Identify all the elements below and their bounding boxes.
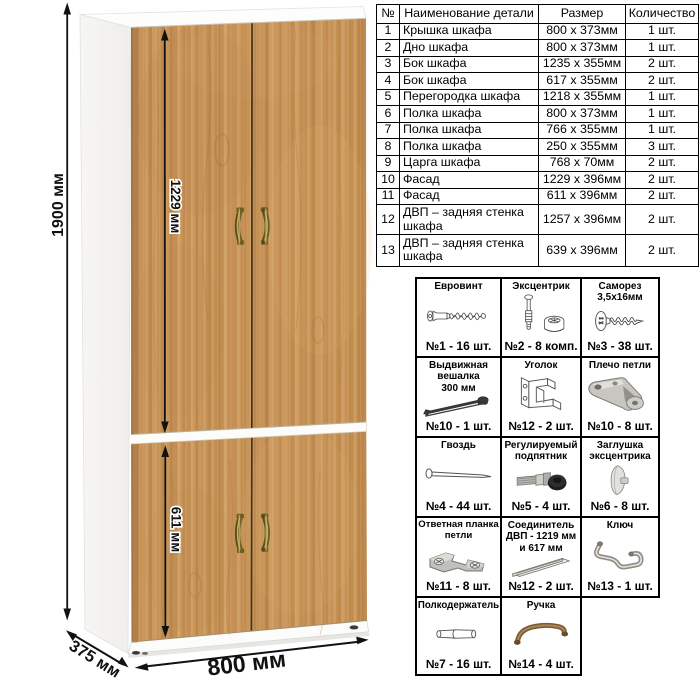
svg-text:1900 мм: 1900 мм	[50, 173, 67, 237]
svg-text:800 мм: 800 мм	[206, 645, 287, 680]
svg-text:1229 мм: 1229 мм	[168, 180, 183, 234]
svg-text:611 мм: 611 мм	[168, 507, 183, 553]
